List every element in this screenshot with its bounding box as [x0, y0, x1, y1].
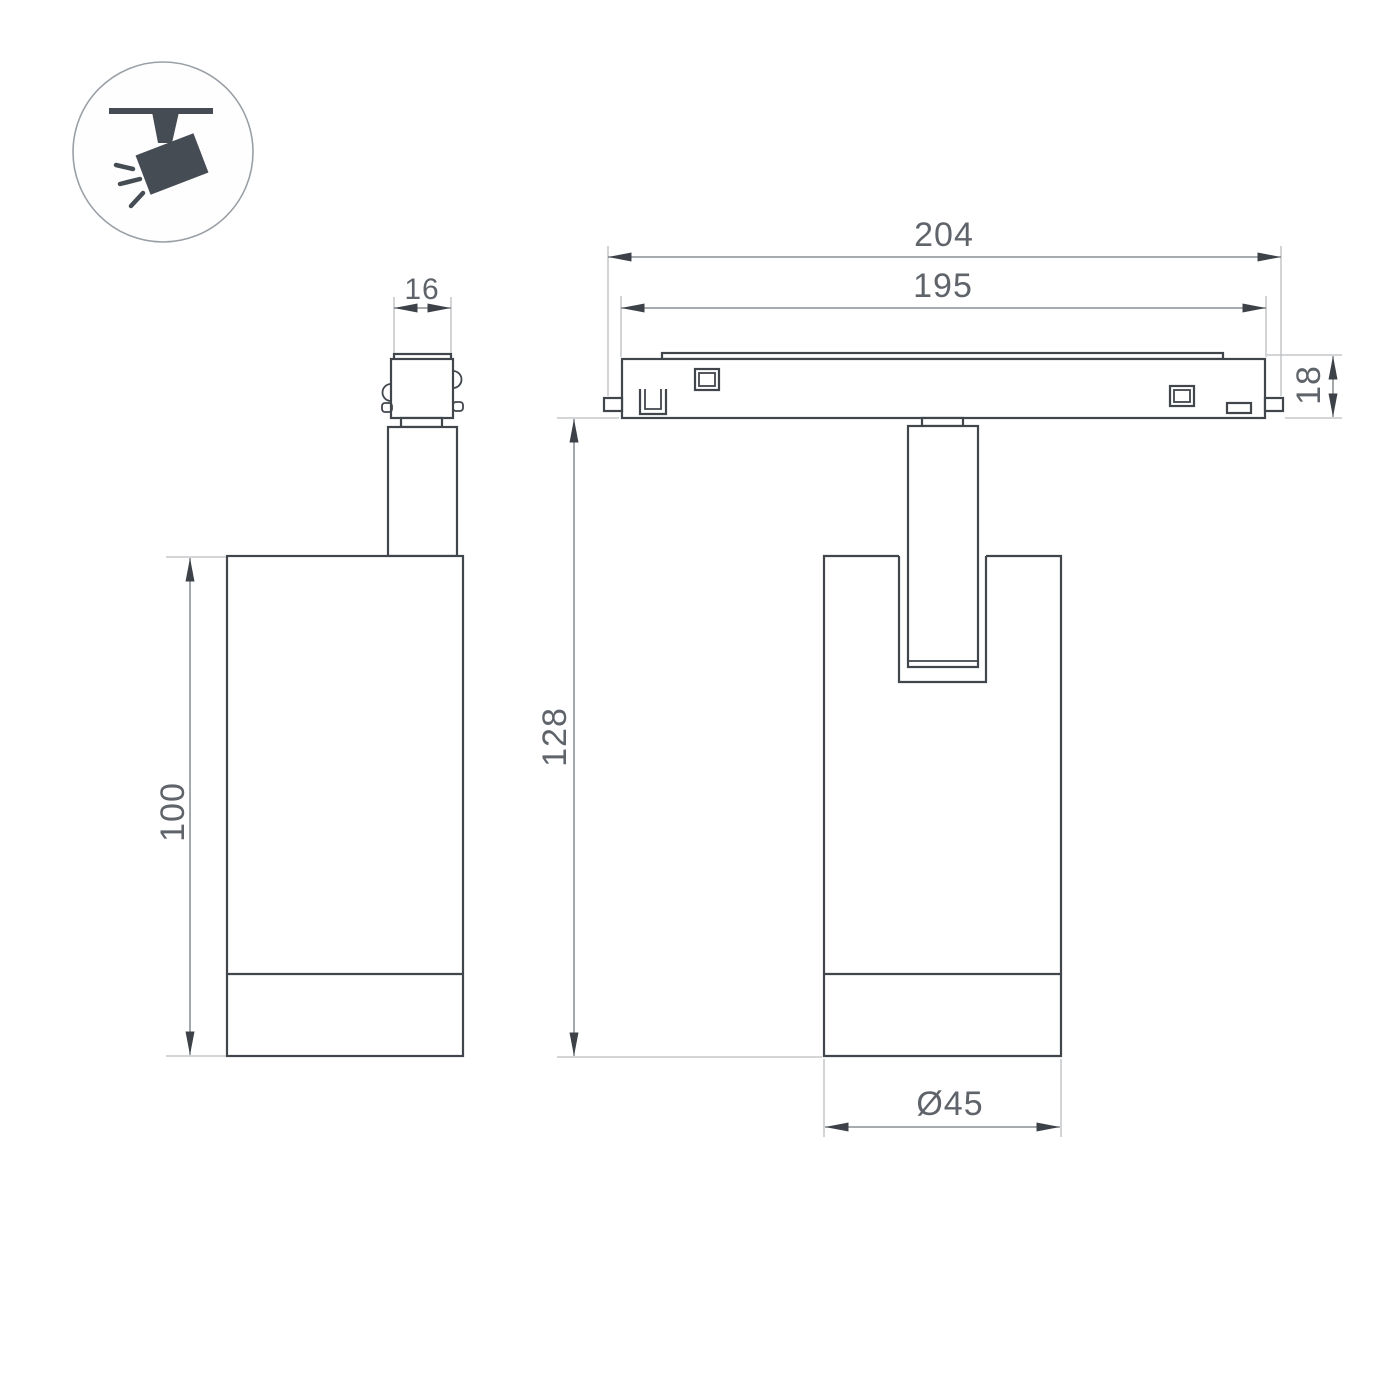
- adapter-clip-right: [453, 371, 462, 388]
- adapter-block: [391, 359, 453, 418]
- dim-body-height: 100: [154, 557, 226, 1056]
- mount-type-icon: [73, 62, 253, 242]
- dim-fixture-height: 128: [536, 418, 822, 1057]
- side-view: 16 100: [154, 273, 463, 1056]
- dim-track-visible-length: 195: [621, 267, 1266, 357]
- dim-label-195: 195: [913, 267, 973, 305]
- dim-label-128: 128: [536, 707, 574, 767]
- dim-label-16: 16: [404, 273, 439, 306]
- dim-body-diameter: Ø45: [824, 1059, 1061, 1137]
- adapter-lug-right: [453, 402, 463, 411]
- stem-neck: [401, 418, 442, 427]
- dim-connector-width: 16: [394, 273, 451, 353]
- lamp-body: [227, 556, 463, 1056]
- adapter-clip-left: [383, 384, 392, 401]
- dim-label-18: 18: [1290, 365, 1328, 405]
- stem: [388, 427, 457, 556]
- dimension-drawing: 16 100: [0, 0, 1400, 1400]
- stem: [908, 426, 978, 667]
- front-view: 204 195 18 128 Ø45: [536, 216, 1342, 1137]
- track-end-tab-right: [1265, 398, 1283, 411]
- dim-label-204: 204: [914, 216, 974, 254]
- dim-label-100: 100: [154, 782, 192, 842]
- dim-label-d45: Ø45: [916, 1085, 983, 1123]
- track-end-tab-left: [604, 398, 622, 411]
- stem-neck: [922, 418, 963, 426]
- technical-drawing-page: 16 100: [0, 0, 1400, 1400]
